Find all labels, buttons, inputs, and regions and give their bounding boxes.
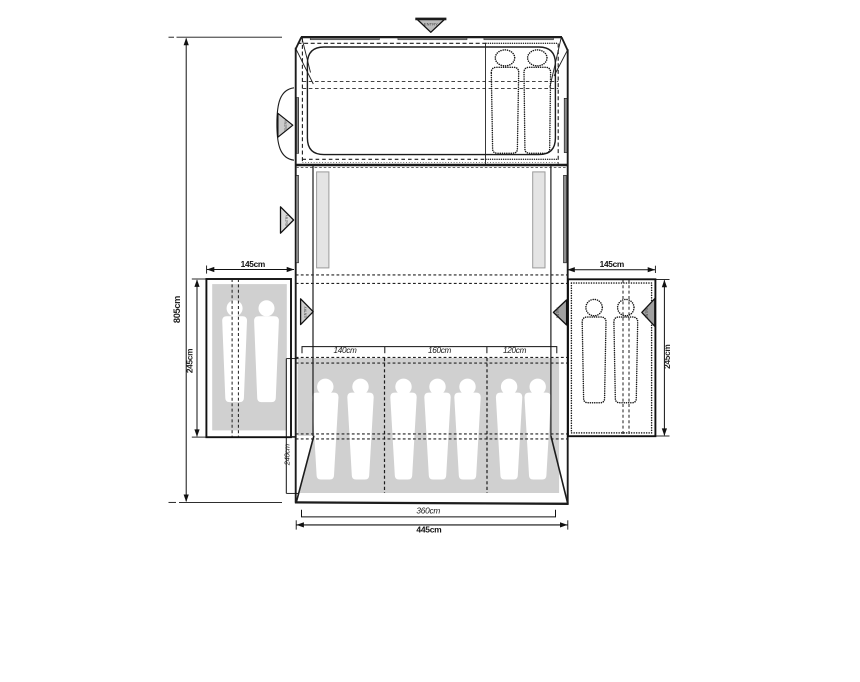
- svg-text:ENTRY: ENTRY: [284, 119, 288, 131]
- svg-text:805cm: 805cm: [172, 296, 182, 323]
- svg-text:360cm: 360cm: [416, 506, 440, 516]
- svg-text:ENTRY: ENTRY: [645, 306, 649, 318]
- svg-text:ENTRY: ENTRY: [424, 21, 438, 26]
- svg-text:240cm: 240cm: [282, 444, 291, 466]
- svg-text:ENTRY: ENTRY: [556, 306, 560, 318]
- svg-text:245cm: 245cm: [662, 345, 672, 369]
- svg-text:160cm: 160cm: [428, 346, 452, 355]
- svg-text:140cm: 140cm: [333, 346, 357, 355]
- svg-text:ENTRY: ENTRY: [285, 214, 289, 226]
- svg-text:145cm: 145cm: [600, 259, 624, 269]
- svg-text:120cm: 120cm: [503, 346, 527, 355]
- svg-text:145cm: 145cm: [241, 259, 265, 269]
- svg-text:445cm: 445cm: [416, 525, 442, 535]
- svg-text:245cm: 245cm: [185, 349, 195, 373]
- svg-text:ENTRY: ENTRY: [303, 306, 307, 318]
